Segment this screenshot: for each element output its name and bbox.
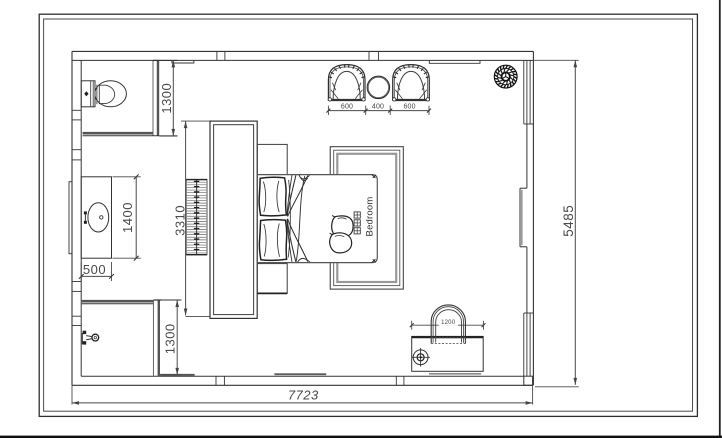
svg-text:1300: 1300 — [159, 83, 174, 114]
svg-text:1200: 1200 — [441, 320, 456, 326]
svg-text:7723: 7723 — [288, 388, 319, 403]
svg-text:3310: 3310 — [173, 205, 188, 236]
svg-text:Bedroom: Bedroom — [365, 197, 376, 237]
svg-text:5485: 5485 — [561, 205, 576, 237]
svg-text:400: 400 — [372, 104, 384, 111]
svg-text:1400: 1400 — [120, 202, 135, 233]
svg-text:600: 600 — [341, 104, 353, 111]
svg-text:500: 500 — [83, 262, 106, 277]
svg-text:1300: 1300 — [162, 323, 177, 354]
svg-text:600: 600 — [403, 104, 415, 111]
